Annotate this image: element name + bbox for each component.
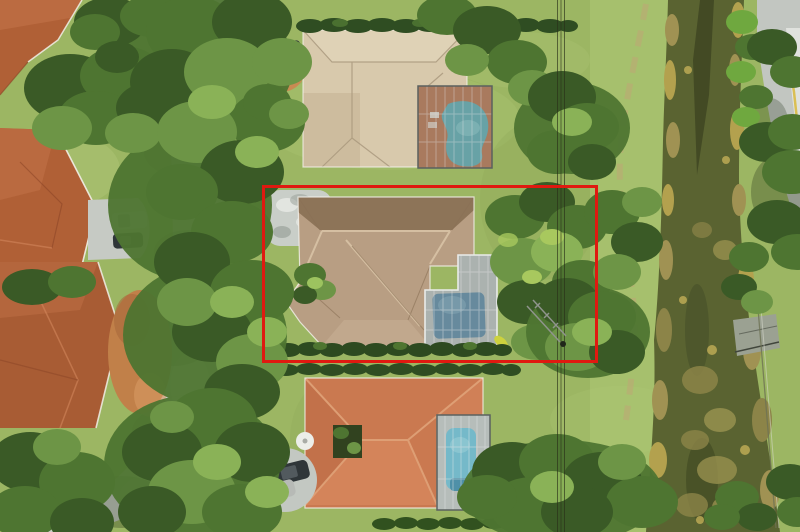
aerial-photo-canvas (0, 0, 800, 532)
umbrella-pole (303, 439, 308, 444)
courtyard-tree (347, 442, 361, 454)
driveway-shadow (273, 226, 291, 238)
north-pool-enclosure (418, 86, 492, 168)
aerial-photo (0, 0, 800, 532)
utility-pole-top (560, 341, 566, 347)
subject-roof-north-slope (298, 197, 474, 230)
courtyard-tree (333, 427, 349, 439)
canal-dark-patch (685, 284, 709, 376)
screen-tint (418, 86, 492, 168)
